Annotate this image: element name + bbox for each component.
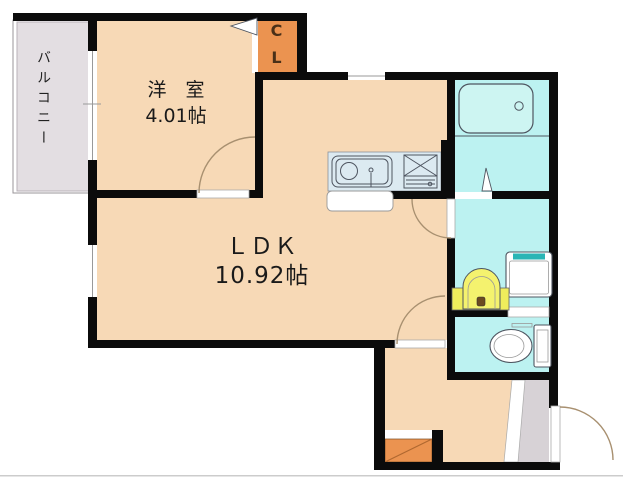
ldk-size: 10.92帖 [97, 262, 427, 291]
floor-plan: 洋 室4.01帖 ＬＤＫ10.92帖 CL バルコニー [0, 0, 623, 480]
kitchen-counter-front [327, 191, 393, 211]
yoshitsu-door-leaf [197, 190, 249, 198]
page-edge-line [0, 475, 623, 477]
balcony-label: バルコニー [33, 50, 53, 200]
kitchen-counter [328, 152, 441, 191]
yoshitsu-size: 4.01帖 [97, 103, 255, 129]
yoshitsu-name: 洋 室 [97, 77, 255, 103]
entrance-door-arc [560, 407, 613, 460]
washroom-door-leaf [447, 199, 455, 238]
ldk-label: ＬＤＫ10.92帖 [97, 233, 427, 291]
washing-machine-icon [506, 252, 552, 297]
window-ldk-left [88, 245, 97, 297]
closet-label: CL [256, 17, 297, 71]
toilet-door-gap [508, 307, 549, 317]
window-ldk-top [348, 72, 385, 80]
closet-letter-c: C [256, 17, 297, 44]
yoshitsu-label: 洋 室4.01帖 [97, 77, 255, 129]
hallway-door-leaf [395, 340, 445, 348]
bathroom-door-gap [455, 192, 492, 199]
shoe-cabinet-icon [385, 430, 432, 462]
closet-letter-l: L [256, 44, 297, 71]
entrance-door-leaf [551, 406, 560, 462]
ldk-name: ＬＤＫ [97, 233, 427, 262]
